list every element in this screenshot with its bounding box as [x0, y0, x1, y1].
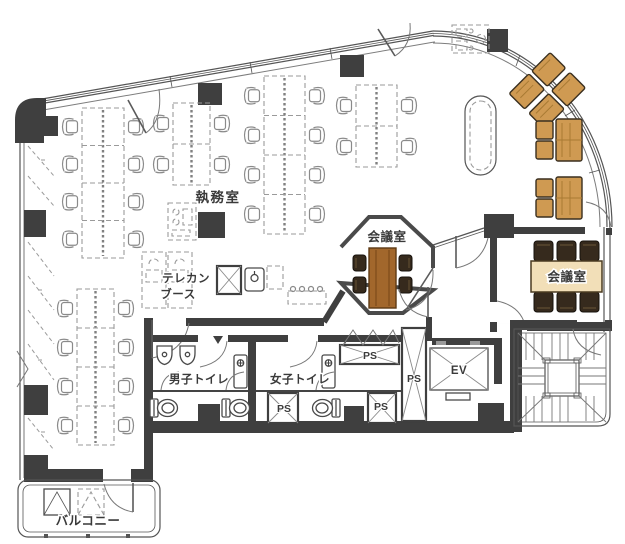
office-chair — [129, 231, 144, 248]
office-chair — [245, 206, 260, 223]
sofa-booth-diagonal — [509, 53, 585, 129]
office-chair — [337, 97, 352, 114]
meeting-center-label: 会議室 — [367, 229, 406, 244]
office-chair — [154, 156, 169, 173]
floor-plan: 執務室 会議室 会議室 テレカン ブース 男子トイレ 女子トイレ バルコニー E… — [0, 0, 625, 544]
office-chair — [58, 339, 73, 356]
office-chair — [129, 119, 144, 136]
hand-sink — [245, 268, 264, 291]
door-swing-mark — [213, 336, 223, 344]
column — [484, 214, 514, 238]
elevator-label: EV — [451, 365, 467, 377]
ps-label-4: PS — [374, 401, 388, 413]
sofa-booth-1 — [536, 119, 582, 161]
column — [340, 55, 364, 77]
mens-toilet-label: 男子トイレ — [169, 373, 229, 386]
ps-label-3: PS — [277, 403, 291, 415]
office-chair — [129, 194, 144, 211]
office-chair — [63, 119, 78, 136]
office-chair — [245, 127, 260, 144]
telecom-booth-label-2: ブース — [160, 287, 195, 301]
desk-cluster-4 — [337, 85, 417, 167]
office-chair — [119, 300, 134, 317]
cabinet — [267, 266, 283, 289]
column — [198, 212, 225, 238]
office-chair — [245, 167, 260, 184]
meeting-room-center — [341, 217, 488, 313]
office-chair — [402, 138, 417, 155]
office-chair — [58, 300, 73, 317]
office-chair — [63, 156, 78, 173]
office-chair — [129, 156, 144, 173]
meeting-right-label: 会議室 — [547, 269, 586, 284]
office-chair — [58, 417, 73, 434]
staircase — [510, 320, 612, 432]
elevator — [430, 338, 504, 422]
office-chair — [63, 231, 78, 248]
desk-cluster-5 — [58, 289, 134, 445]
office-chair — [310, 88, 325, 105]
womens-toilet-label: 女子トイレ — [270, 372, 330, 386]
office-label: 執務室 — [196, 189, 241, 205]
office-chair — [245, 88, 260, 105]
ps-label-2: PS — [407, 373, 421, 385]
office-chair — [310, 127, 325, 144]
copier — [168, 203, 196, 240]
office-chair — [337, 138, 352, 155]
office-chair — [63, 194, 78, 211]
standing-table — [465, 96, 496, 175]
core — [150, 287, 504, 425]
desk-cluster-2 — [154, 103, 230, 185]
office-chair — [310, 167, 325, 184]
ps-label-1: PS — [363, 350, 377, 362]
office-chair — [119, 417, 134, 434]
column — [198, 83, 222, 105]
balcony — [18, 480, 160, 538]
utility-shaft — [217, 266, 241, 294]
balcony-label: バルコニー — [56, 514, 121, 528]
sofa-booth-2 — [536, 177, 582, 219]
office-chair — [215, 156, 230, 173]
office-chair — [215, 115, 230, 132]
office-chair — [119, 339, 134, 356]
desk-cluster-1 — [63, 108, 144, 258]
desk-cluster-3 — [245, 76, 325, 234]
columns — [198, 29, 514, 238]
office-chair — [402, 97, 417, 114]
office-chair — [119, 378, 134, 395]
telecom-booth-label-1: テレカン — [162, 272, 210, 285]
counter-stools — [288, 287, 326, 305]
floor-plan-svg: 執務室 会議室 会議室 テレカン ブース 男子トイレ 女子トイレ バルコニー E… — [0, 0, 625, 544]
office-chair — [58, 378, 73, 395]
column — [487, 29, 508, 52]
office-chair — [154, 115, 169, 132]
office-chair — [310, 206, 325, 223]
